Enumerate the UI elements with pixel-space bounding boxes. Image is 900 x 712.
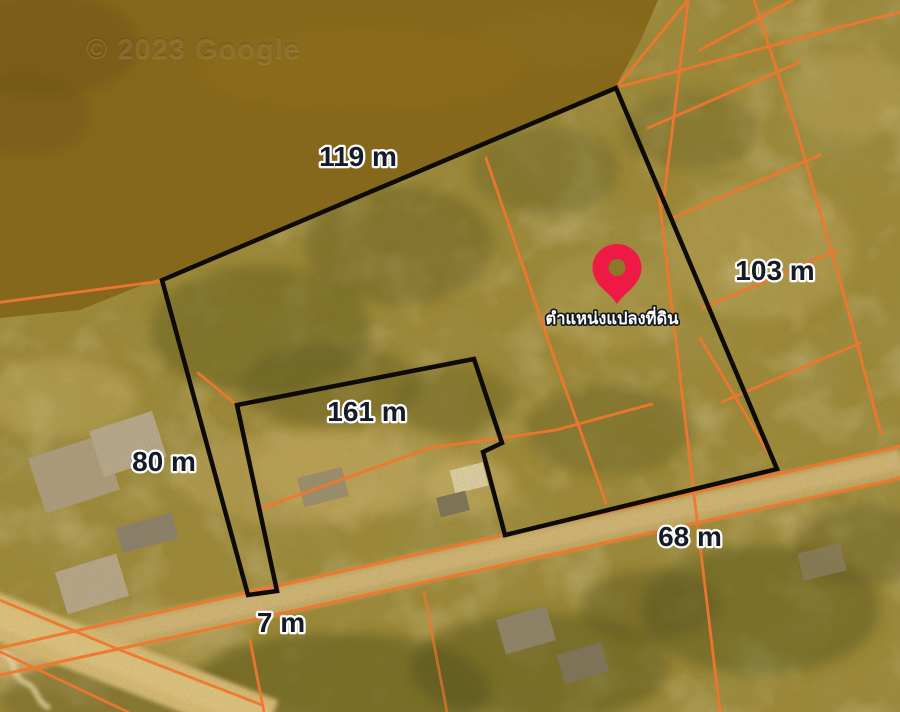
google-copyright-watermark: © 2023 Google — [86, 34, 301, 67]
measurement-label-7m: 7 m — [257, 607, 305, 638]
measurement-label-119m: 119 m — [319, 141, 397, 172]
measurement-label-103m: 103 m — [735, 255, 814, 286]
map-canvas[interactable]: 119 m 103 m 161 m 80 m 68 m 7 m ตำแหน่งแ… — [0, 0, 900, 712]
measurement-label-161m: 161 m — [327, 396, 406, 427]
measurement-label-80m: 80 m — [132, 446, 196, 477]
grain-overlay — [0, 0, 900, 712]
map-viewport: 119 m 103 m 161 m 80 m 68 m 7 m ตำแหน่งแ… — [0, 0, 900, 712]
measurement-label-68m: 68 m — [658, 521, 722, 552]
pin-caption-label: ตำแหน่งแปลงที่ดิน — [546, 306, 680, 328]
